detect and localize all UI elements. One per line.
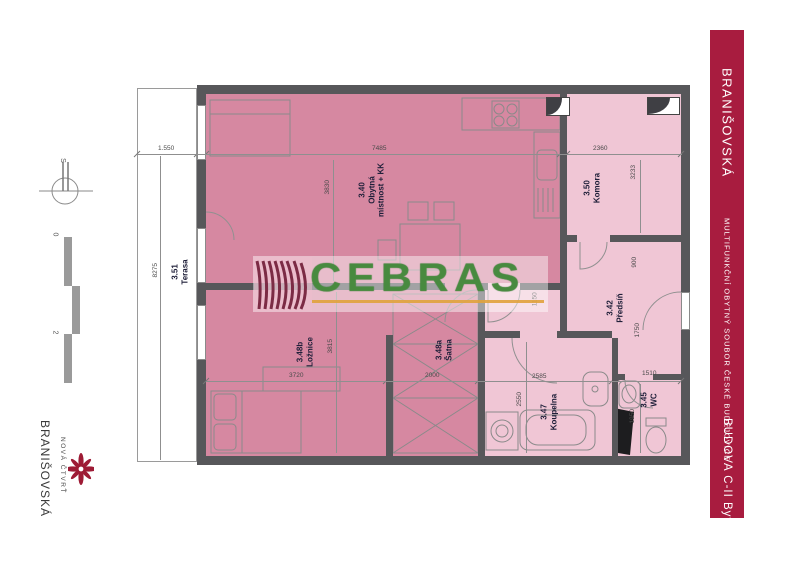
watermark-text: CEBRAS xyxy=(310,258,567,298)
room-label-living: 3.40 Obytná místnost + KK xyxy=(358,163,387,217)
dim-living-height: 3830 xyxy=(325,180,332,194)
wall xyxy=(557,331,612,338)
room-label-terasa: 3.51 Terasa xyxy=(170,259,189,284)
wall xyxy=(560,94,567,338)
entrance-door-opening xyxy=(681,292,690,330)
dim-hall-door: 1750 xyxy=(635,323,642,337)
window xyxy=(197,305,206,360)
room-label-koupelna: 3.47 Koupelna xyxy=(539,394,558,430)
dim-satna-width: 2000 xyxy=(425,373,439,380)
room-label-predsin: 3.42 Předsíň xyxy=(605,293,624,322)
dim-bedroom-width: 3720 xyxy=(289,373,303,380)
room-label-wc: 3.45 WC xyxy=(639,392,658,408)
dim-wc-width: 1510 xyxy=(642,371,656,378)
wall xyxy=(386,335,393,456)
shaft-symbol xyxy=(647,97,680,115)
kitchen-fixtures xyxy=(462,98,560,218)
dim-living-width: 7485 xyxy=(372,146,386,153)
shaft-symbol xyxy=(546,97,570,116)
wall xyxy=(485,331,520,338)
dim-koupelna-width: 2585 xyxy=(532,374,546,381)
dim-hall-top: 900 xyxy=(632,257,639,268)
watermark-zebra-icon xyxy=(254,257,312,311)
dim-wc-height: 1950 xyxy=(630,409,637,423)
sidebar-project-name: BRANIŠOVSKÁ xyxy=(720,68,735,178)
window xyxy=(197,105,206,160)
dim-terrace-height: 8275 xyxy=(153,263,160,277)
bedroom-furniture xyxy=(211,367,340,453)
room-label-satna: 3.48a Šatna xyxy=(434,339,453,361)
dim-loznice-height: 3815 xyxy=(328,339,335,353)
dim-terrace-width: 1.550 xyxy=(158,146,174,153)
wall xyxy=(653,374,681,380)
dim-komora-width: 2360 xyxy=(593,146,607,153)
sidebar-unit-label: BUDOVA C-II Byt 94 xyxy=(721,418,733,541)
watermark-underline xyxy=(312,300,544,303)
wall xyxy=(610,235,681,242)
room-label-loznice: 3.48b Ložnice xyxy=(295,337,314,367)
wall xyxy=(567,235,577,242)
dim-line xyxy=(526,342,527,453)
living-furniture xyxy=(210,100,460,270)
dim-koupelna-height: 2550 xyxy=(517,392,524,406)
terrace-door-opening xyxy=(197,228,206,283)
wall xyxy=(612,338,618,456)
floorplan-page: { "sidebar": { "project": "BRANIŠOVSKÁ",… xyxy=(0,0,800,569)
dim-line xyxy=(160,156,161,460)
wall xyxy=(618,374,625,380)
room-label-komora: 3.50 Komora xyxy=(582,173,601,203)
dim-line xyxy=(336,292,337,453)
dim-line xyxy=(206,381,681,382)
dim-line xyxy=(640,160,641,233)
project-sidebar: BRANIŠOVSKÁ MULTIFUNKČNÍ OBYTNÝ SOUBOR Č… xyxy=(710,30,744,518)
dim-komora-height: 3233 xyxy=(631,165,638,179)
dim-line xyxy=(137,154,682,155)
